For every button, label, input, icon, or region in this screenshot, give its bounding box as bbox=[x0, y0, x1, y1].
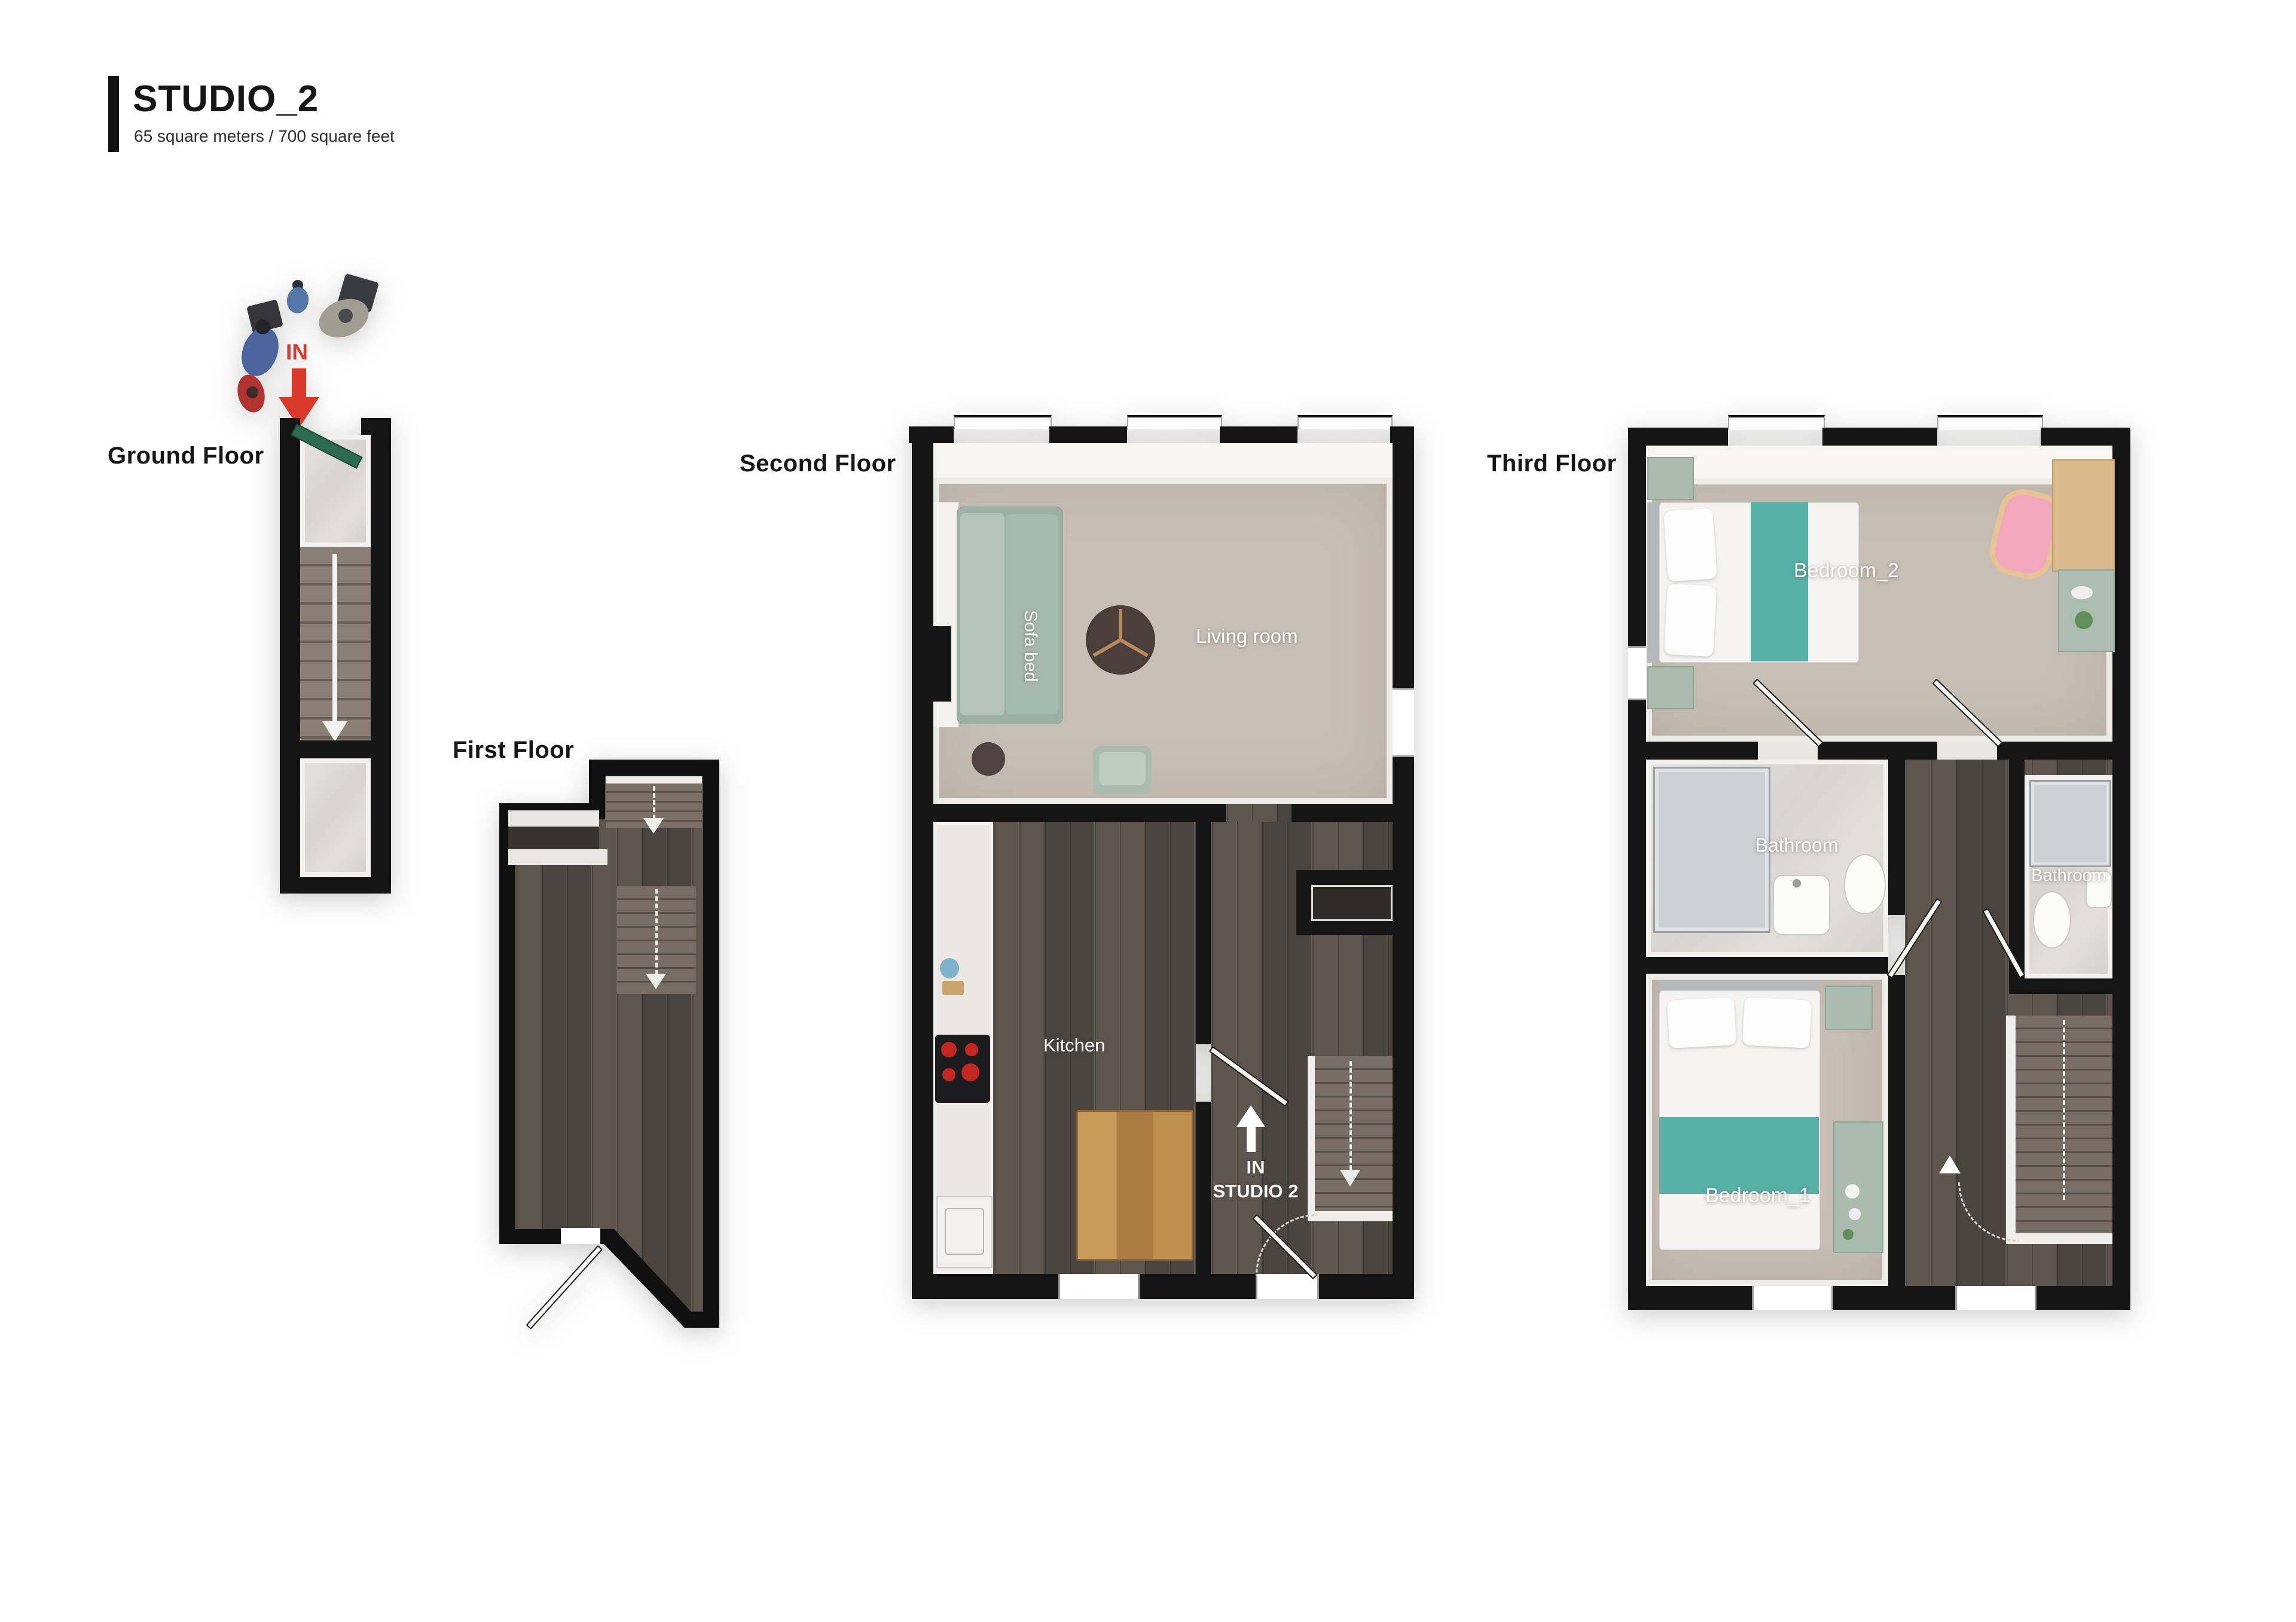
stairs-arrow-stem-icon bbox=[1349, 1061, 1352, 1170]
person-head-icon bbox=[246, 386, 258, 398]
wall bbox=[912, 426, 933, 1299]
bathroom1-label: Bathroom bbox=[1743, 834, 1851, 856]
bay-window bbox=[1297, 415, 1393, 429]
window-sill-band bbox=[933, 443, 1393, 478]
stairs-down-arrow-icon bbox=[643, 818, 664, 834]
wall bbox=[1220, 426, 1297, 443]
teacup bbox=[1845, 1184, 1860, 1199]
entrance-in-label: IN bbox=[286, 340, 308, 365]
window-opening bbox=[1955, 1286, 2037, 1310]
bay-window bbox=[1728, 415, 1825, 430]
closet-shelf bbox=[508, 849, 607, 865]
wall bbox=[933, 804, 1226, 822]
ground-floor-plan: IN bbox=[227, 263, 442, 927]
wall bbox=[1830, 1286, 1955, 1310]
pillow bbox=[1667, 997, 1736, 1048]
stairs-arrow-stem-icon bbox=[653, 786, 655, 819]
staircase bbox=[1315, 1056, 1393, 1211]
stairs-down-arrow-icon bbox=[322, 721, 347, 742]
nightstand bbox=[1647, 666, 1694, 709]
window-opening bbox=[1393, 688, 1414, 757]
wall bbox=[361, 418, 391, 435]
wall bbox=[1296, 870, 1311, 935]
stove-burner bbox=[961, 1063, 979, 1081]
wall-stub bbox=[933, 626, 951, 702]
wardrobe-niche bbox=[1311, 885, 1393, 921]
stairs-arrow-stem-icon bbox=[655, 889, 658, 975]
page-subtitle-area: 65 square meters / 700 square feet bbox=[134, 127, 395, 146]
bedroom1-label: Bedroom_1 bbox=[1686, 1184, 1830, 1208]
bedroom2-label: Bedroom_2 bbox=[1794, 559, 1899, 583]
stairs-down-arrow-icon bbox=[646, 974, 666, 989]
bed-headboard bbox=[1659, 980, 1819, 990]
title-accent-bar bbox=[108, 76, 119, 152]
stair-wall-lining bbox=[1308, 1211, 1393, 1221]
window-opening bbox=[1628, 646, 1646, 700]
third-floor-plan: Bedroom_2 Bathroom Bed bbox=[1614, 413, 2141, 1322]
wall bbox=[1628, 1286, 1752, 1310]
kitchen-table bbox=[1076, 1110, 1193, 1261]
stove-burner bbox=[965, 1043, 978, 1056]
person-head-icon bbox=[255, 319, 270, 334]
page-title: STUDIO_2 bbox=[133, 78, 319, 120]
bed-headboard bbox=[1647, 502, 1659, 663]
door-opening bbox=[561, 1228, 600, 1244]
cutting-board bbox=[942, 981, 964, 995]
pillow bbox=[1742, 997, 1812, 1048]
toilet bbox=[1844, 854, 1886, 914]
coffee-table-seam bbox=[1119, 609, 1122, 640]
nightstand bbox=[1825, 986, 1873, 1030]
dresser bbox=[2058, 569, 2115, 652]
wood-counter bbox=[2052, 459, 2115, 572]
wall bbox=[1393, 426, 1414, 1299]
wall bbox=[1888, 975, 1905, 1286]
stairs-path-dashed-icon bbox=[2063, 1020, 2065, 1200]
wall bbox=[280, 418, 300, 894]
sofa-cushion bbox=[960, 513, 1004, 715]
first-floor-plan bbox=[490, 754, 729, 1346]
door-opening bbox=[1937, 742, 1997, 760]
door-opening bbox=[1256, 1274, 1319, 1299]
kitchen-label: Kitchen bbox=[1043, 1035, 1105, 1056]
wall bbox=[1818, 742, 1937, 760]
wall bbox=[2009, 978, 2130, 994]
wall bbox=[1888, 760, 1905, 915]
window-opening bbox=[1058, 1274, 1140, 1299]
nightstand bbox=[1647, 457, 1694, 500]
closet-shelf bbox=[508, 810, 599, 827]
wall bbox=[1196, 822, 1211, 1044]
wall bbox=[1136, 1274, 1256, 1299]
stove-burner bbox=[942, 1068, 955, 1081]
living-room-label: Living room bbox=[1196, 625, 1298, 648]
pillow bbox=[1663, 508, 1717, 581]
stair-wall-lining bbox=[2006, 1233, 2112, 1244]
stove-burner bbox=[941, 1042, 957, 1057]
stair-wall-lining bbox=[1308, 1056, 1315, 1221]
bay-window bbox=[1937, 415, 2043, 430]
floorplan-page: STUDIO_2 65 square meters / 700 square f… bbox=[0, 0, 2296, 1622]
wall bbox=[300, 740, 371, 758]
lower-room-floor bbox=[300, 758, 371, 877]
wall bbox=[1311, 921, 1393, 935]
pillow bbox=[1664, 584, 1717, 657]
studio-entry-label-line2: STUDIO 2 bbox=[1205, 1181, 1306, 1202]
toilet bbox=[2033, 891, 2071, 949]
plant bbox=[2075, 611, 2093, 629]
door-leaf bbox=[526, 1245, 603, 1330]
wall bbox=[1628, 742, 1758, 760]
dish bbox=[2071, 586, 2093, 599]
appliance-door bbox=[945, 1208, 984, 1255]
door-opening bbox=[1226, 804, 1291, 822]
second-floor-label: Second Floor bbox=[740, 450, 896, 477]
wall bbox=[2033, 1286, 2130, 1310]
wall bbox=[280, 877, 391, 894]
studio-entry-label-line1: IN bbox=[1211, 1157, 1300, 1178]
wall bbox=[1646, 957, 1888, 974]
kitchen-sink bbox=[940, 958, 959, 978]
closet-recess bbox=[508, 827, 599, 849]
person-icon bbox=[285, 286, 310, 315]
window-opening bbox=[1752, 1286, 1833, 1310]
stair-landing bbox=[606, 776, 702, 783]
stairs-up-arrow-icon bbox=[1939, 1155, 1961, 1173]
door-opening bbox=[1758, 742, 1818, 760]
person-head-icon bbox=[338, 309, 353, 323]
bay-window bbox=[954, 415, 1052, 429]
entry-arrow-stem-icon bbox=[292, 368, 306, 398]
bed-runner bbox=[1659, 1117, 1819, 1194]
third-floor-label: Third Floor bbox=[1487, 450, 1617, 477]
teacup bbox=[1849, 1208, 1861, 1220]
armchair-cushion bbox=[1099, 752, 1146, 785]
plant bbox=[1843, 1229, 1854, 1240]
studio-entry-arrow-stem-icon bbox=[1247, 1127, 1256, 1152]
wall bbox=[1628, 428, 1646, 1310]
stairs-arrow-stem-icon bbox=[332, 554, 337, 722]
wall bbox=[1049, 426, 1127, 443]
wall bbox=[1315, 1274, 1414, 1299]
sofa-bed-label: Sofa bed bbox=[1020, 610, 1040, 682]
bay-window bbox=[1127, 415, 1222, 429]
stairs-down-arrow-icon bbox=[1340, 1170, 1360, 1187]
wall bbox=[1822, 428, 1937, 446]
second-floor-plan: Sofa bed Living room Kitchen bbox=[909, 413, 1423, 1310]
wall bbox=[1997, 742, 2130, 760]
side-table bbox=[972, 742, 1005, 776]
shower bbox=[2029, 780, 2111, 867]
wall bbox=[371, 418, 391, 894]
studio-entry-arrow-up-icon bbox=[1236, 1105, 1265, 1127]
bathroom2-label: Bathroom bbox=[2009, 866, 2129, 886]
window-sill-band bbox=[1646, 446, 2112, 478]
faucet bbox=[1793, 879, 1801, 888]
wall bbox=[912, 1274, 1058, 1299]
wall bbox=[1291, 804, 1393, 822]
sink bbox=[1773, 875, 1830, 935]
